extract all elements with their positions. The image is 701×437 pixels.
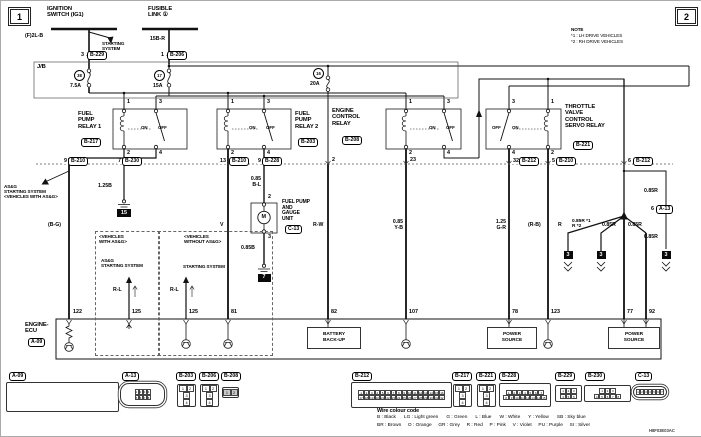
connector-ref-b203: B-203 xyxy=(298,138,318,147)
ecu-pin-125b: 125 xyxy=(189,310,198,315)
connector-ref-b208: B-208 xyxy=(342,136,362,145)
pin-3-b229: 3 xyxy=(81,53,84,58)
wire-v: V xyxy=(220,223,223,229)
strip-label-a09: A-09 xyxy=(9,372,26,381)
fuse-17-number: 17 xyxy=(154,70,165,81)
pin-2: 2 xyxy=(331,158,336,163)
engine-control-relay-label: ENGINE CONTROL RELAY xyxy=(332,108,360,127)
fuse-38-number: 38 xyxy=(74,70,85,81)
page-tag-2: 2 xyxy=(677,9,696,24)
ecu-pin-82: 82 xyxy=(331,310,337,315)
wire-085r-note: 0.85R *1 R *2 xyxy=(572,219,591,230)
pin-23: 23 xyxy=(409,158,417,163)
wiring-diagram-page: 1 2 NOTE *1 : LH DRIVE VEHICLES *2 : RH … xyxy=(0,0,701,437)
strip-label-c13: C-13 xyxy=(635,372,652,381)
r1-pin2: 2 xyxy=(127,151,130,156)
r2-pin3: 3 xyxy=(267,100,270,105)
tvr-pin4: 4 xyxy=(512,151,515,156)
connector-b212-pins: 1234567891011121314151617181920212223242… xyxy=(351,382,452,408)
fuse-16-number: 16 xyxy=(313,68,324,79)
battery-backup-box: BATTERY BACK-UP xyxy=(307,327,361,349)
power-source-box-2: POWER SOURCE xyxy=(608,327,660,349)
strip-label-b203: B-203 xyxy=(176,372,196,381)
ignition-switch-label: IGNITION SWITCH (IG1) xyxy=(47,6,83,19)
strip-label-b228: B-228 xyxy=(499,372,519,381)
doc-code: H8F03E03AC xyxy=(649,429,675,434)
strip-label-a13: A-13 xyxy=(122,372,139,381)
wire-r: R xyxy=(558,223,562,229)
connector-b206-pins: 1234 xyxy=(200,384,219,407)
fusible-wire-label: 15B-R xyxy=(150,37,165,43)
wire-085r-a: 0.85R xyxy=(602,223,616,229)
fuse-17-rating: 15A xyxy=(153,84,163,90)
wire-085r-c: 0.85R xyxy=(644,189,658,195)
page-ref-3-a: 3 xyxy=(564,251,573,259)
ecu-pin-92: 92 xyxy=(649,310,655,315)
note-line-2: *2 : RH DRIVE VEHICLES xyxy=(571,39,623,44)
legend-title: Wire colour code xyxy=(377,408,419,414)
starting-system-ref: STARTING SYSTEM xyxy=(102,41,124,51)
ground-15: 15 xyxy=(117,209,131,217)
ecr-off: OFF xyxy=(446,126,455,130)
r2-pin2: 2 xyxy=(231,151,234,156)
legend-row-1: B : Black LG : Light green G : Green L :… xyxy=(377,416,586,421)
fuse-16-rating: 20A xyxy=(310,82,320,88)
wire-rl-b: R-L xyxy=(170,288,179,294)
strip-label-b230: B-230 xyxy=(585,372,605,381)
r2-on: ON xyxy=(249,126,256,130)
connector-b229-pins: 123456 xyxy=(555,385,582,402)
ecu-pin-77: 77 xyxy=(627,310,633,315)
strip-label-b221: B-221 xyxy=(476,372,496,381)
ecu-pin-81: 81 xyxy=(231,310,237,315)
junction-block-label: J/B xyxy=(37,64,46,70)
connector-ref-b221: B-221 xyxy=(573,141,593,150)
without-asg-title: <VEHICLES WITHOUT AS&G> xyxy=(184,234,221,244)
connector-ref-b230: B-230 xyxy=(122,157,142,166)
r1-pin3: 3 xyxy=(159,100,162,105)
r2-off: OFF xyxy=(266,126,275,130)
strip-label-b208: B-208 xyxy=(221,372,241,381)
wire-125-gr: 1.25 G-R xyxy=(489,220,506,231)
ignition-wire-label: (F)2L-B xyxy=(25,34,43,40)
wire-rb: (R-B) xyxy=(528,223,541,229)
wire-085-bl: 0.85 B-L xyxy=(239,177,261,188)
strip-label-b206: B-206 xyxy=(199,372,219,381)
connector-b208-pins: 12 xyxy=(222,387,239,398)
fuel-pump-unit-label: FUEL PUMP AND GAUGE UNIT xyxy=(282,200,310,222)
fuse-38-rating: 7.5A xyxy=(70,84,81,90)
page-tag-1: 1 xyxy=(10,9,29,24)
connector-ref-b212-a: B-212 xyxy=(519,157,539,166)
r1-pin4: 4 xyxy=(159,151,162,156)
wiring-lines xyxy=(1,1,701,436)
connector-b228-pins: 123456789101112131415 xyxy=(499,383,551,407)
connector-ref-b210-b: B-210 xyxy=(229,157,249,166)
connector-b203-pins: 1234 xyxy=(177,384,196,407)
connector-ref-b206: B-206 xyxy=(167,51,187,60)
connector-b221-pins: 1234 xyxy=(477,384,496,407)
ecu-pin-122: 122 xyxy=(73,310,82,315)
r1-on: ON xyxy=(141,126,148,130)
page-ref-3-c: 3 xyxy=(662,251,671,259)
ecr-pin4: 4 xyxy=(447,151,450,156)
wire-b-g: (B-G) xyxy=(48,223,61,229)
pin-6-a13: 6 xyxy=(650,207,655,212)
tvr-pin3: 3 xyxy=(512,100,515,105)
vehicles-with-asg-box xyxy=(95,231,160,356)
connector-c13-pins: 1234567 xyxy=(633,386,667,398)
wire-rw: R-W xyxy=(313,223,323,229)
with-asg-title: <VEHICLES WITH AS&G> xyxy=(99,234,127,244)
connector-ref-b217: B-217 xyxy=(81,138,101,147)
connector-a09-pins xyxy=(6,382,119,412)
note-title: NOTE xyxy=(571,27,583,32)
connector-b217-pins: 1234 xyxy=(453,384,472,407)
motor-symbol: M xyxy=(262,215,267,220)
r2-pin4: 4 xyxy=(267,151,270,156)
fuel-pump-relay1-label: FUEL PUMP RELAY 1 xyxy=(78,111,101,130)
tvr-pin1: 1 xyxy=(551,100,554,105)
note-line-1: *1 : LH DRIVE VEHICLES xyxy=(571,33,622,38)
connector-ref-b210-c: B-210 xyxy=(556,157,576,166)
connector-ref-a13: A-13 xyxy=(656,205,673,214)
r2-pin1: 1 xyxy=(231,100,234,105)
wire-085r-d: 0.85R xyxy=(644,235,658,241)
connector-ref-b210-a: B-210 xyxy=(68,157,88,166)
connector-ref-c13: C-13 xyxy=(285,225,302,234)
legend-row-2: BR : Brown O : Orange GR : Grey R : Red … xyxy=(377,424,590,429)
fusible-link-label: FUSIBLE LINK ① xyxy=(148,6,172,19)
wire-1-25b: 1.25B xyxy=(98,184,112,190)
wire-085-yb: 0.85 Y-B xyxy=(387,220,403,231)
strip-label-b217: B-217 xyxy=(452,372,472,381)
wire-rl-a: R-L xyxy=(113,288,122,294)
ecu-pin-123: 123 xyxy=(551,310,560,315)
ecr-pin3: 3 xyxy=(447,100,450,105)
pin-6-b212: 6 xyxy=(627,159,632,164)
ecr-pin2: 2 xyxy=(409,151,412,156)
r1-pin1: 1 xyxy=(127,100,130,105)
tvr-pin2: 2 xyxy=(551,151,554,156)
connector-ref-a09: A-09 xyxy=(28,338,45,347)
r1-off: OFF xyxy=(158,126,167,130)
engine-ecu-label: ENGINE- ECU xyxy=(25,322,48,335)
throttle-servo-relay-label: THROTTLE VALVE CONTROL SERVO RELAY xyxy=(565,104,605,130)
power-source-box-1: POWER SOURCE xyxy=(487,327,537,349)
pump-pin2: 2 xyxy=(268,195,271,200)
pin-1-b206: 1 xyxy=(161,53,164,58)
ecu-pin-107: 107 xyxy=(409,310,418,315)
tvr-on: ON xyxy=(512,126,519,130)
without-asg-system: STARTING SYSTEM xyxy=(183,264,225,269)
strip-label-b229: B-229 xyxy=(555,372,575,381)
page-ref-3-b: 3 xyxy=(597,251,606,259)
with-asg-system: AS&G STARTING SYSTEM xyxy=(101,258,143,268)
fuel-pump-relay2-label: FUEL PUMP RELAY 2 xyxy=(295,111,318,130)
wire-085r-b: 0.85R xyxy=(628,223,642,229)
ecu-pin-125a: 125 xyxy=(132,310,141,315)
pin-13-b210: 13 xyxy=(219,159,227,164)
connector-b230-pins: 12345678 xyxy=(584,385,631,402)
tvr-off: OFF xyxy=(492,126,501,130)
connector-ref-b229: B-229 xyxy=(87,51,107,60)
connector-ref-b228: B-228 xyxy=(262,157,282,166)
ecu-pin-78: 78 xyxy=(512,310,518,315)
ecr-pin1: 1 xyxy=(409,100,412,105)
ecr-on: ON xyxy=(429,126,436,130)
connector-a13-pins: 12345678 xyxy=(120,383,165,406)
connector-ref-b212-b: B-212 xyxy=(633,157,653,166)
strip-label-b212: B-212 xyxy=(352,372,372,381)
asg-starting-note: AS&G STARTING SYSTEM <VEHICLES WITH AS&G… xyxy=(4,184,58,199)
